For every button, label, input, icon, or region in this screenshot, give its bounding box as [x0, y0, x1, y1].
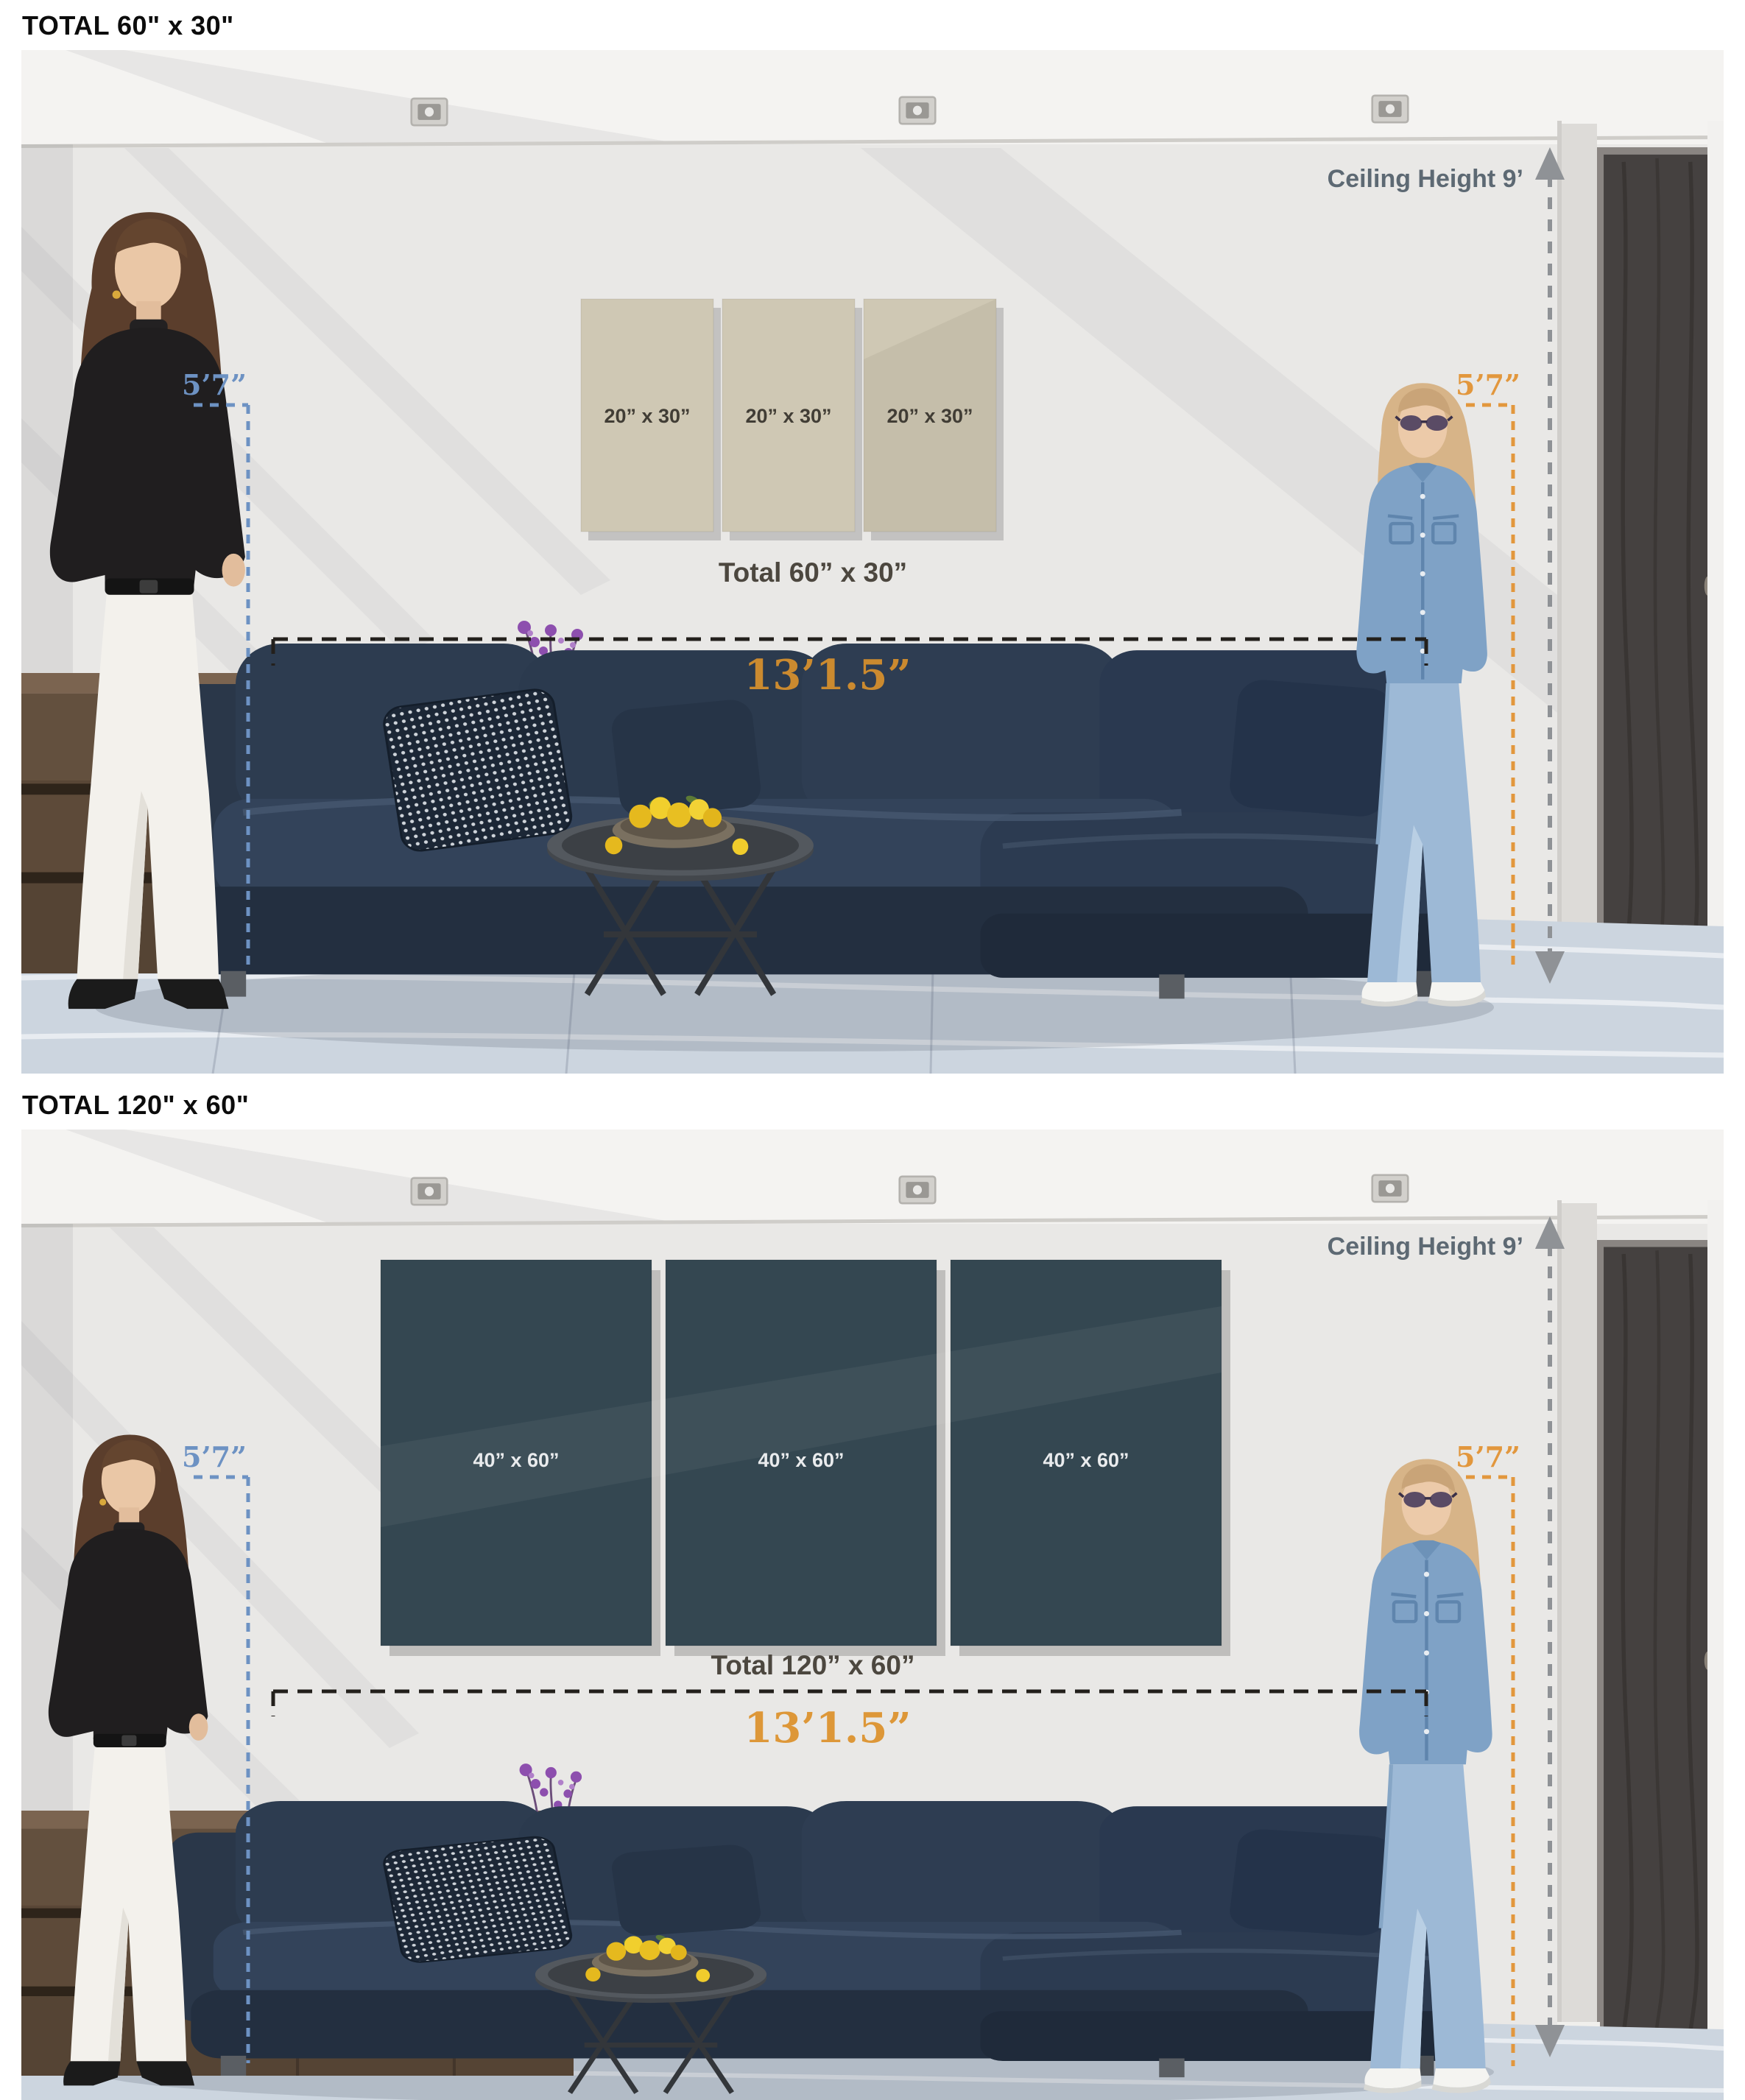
right-height-label: 5’7”	[1456, 1440, 1520, 1473]
recessed-light	[412, 1178, 448, 1205]
room-photo-small: 20” x 30” 20” x 30” 20” x 30” Total 60” …	[21, 50, 1724, 1074]
canvas-size-label: 40” x 60”	[1043, 1449, 1129, 1471]
wall-corner	[1557, 121, 1562, 982]
room-photo-large: 40” x 60” 40” x 60” 40” x 60” Total 120”…	[21, 1130, 1724, 2100]
canvas-size-label: 20” x 30”	[886, 405, 973, 427]
canvas-size-label: 40” x 60”	[473, 1449, 559, 1471]
right-height-label: 5’7”	[1456, 368, 1520, 401]
room-scene-large: 40” x 60” 40” x 60” 40” x 60” Total 120”…	[21, 1130, 1724, 2100]
total-size-label: Total 60” x 30”	[719, 557, 907, 588]
total-size-label: Total 120” x 60”	[711, 1650, 915, 1680]
size-demo-small-section: TOTAL 60" x 30"	[0, 0, 1745, 1074]
canvas-size-label: 20” x 30”	[745, 405, 831, 427]
door-side-trim	[1707, 1200, 1724, 2100]
canvas-size-label: 40” x 60”	[758, 1449, 844, 1471]
left-height-label: 5’7”	[182, 368, 247, 401]
width-dimension-label: 13’1.5”	[744, 1704, 911, 1752]
recessed-light	[900, 97, 936, 124]
door	[1597, 147, 1724, 988]
ceiling-height-label: Ceiling Height 9’	[1328, 1233, 1523, 1261]
recessed-light	[412, 99, 448, 125]
room-scene-small: 20” x 30” 20” x 30” 20” x 30” Total 60” …	[21, 50, 1724, 1074]
sofa	[169, 1801, 1457, 2077]
size-demo-large-section: TOTAL 120" x 60"	[0, 1074, 1745, 2100]
ceiling-height-label: Ceiling Height 9’	[1328, 165, 1523, 193]
canvas-set: 40” x 60” 40” x 60” 40” x 60”	[381, 1260, 1230, 1656]
canvas-size-label: 20” x 30”	[604, 405, 690, 427]
section-title-small: TOTAL 60" x 30"	[0, 0, 1745, 50]
section-title-large: TOTAL 120" x 60"	[0, 1074, 1745, 1130]
wall-corner	[1557, 1200, 1562, 2047]
recess-wall	[1562, 1203, 1597, 2047]
canvas-set: 20” x 30” 20” x 30” 20” x 30”	[581, 299, 1004, 540]
recess-wall	[1562, 124, 1597, 982]
door	[1597, 1240, 1724, 2046]
recessed-light	[900, 1177, 936, 1203]
recessed-light	[1372, 96, 1409, 122]
recessed-light	[1372, 1175, 1409, 1202]
width-dimension-label: 13’1.5”	[744, 651, 911, 700]
left-height-label: 5’7”	[182, 1440, 247, 1473]
